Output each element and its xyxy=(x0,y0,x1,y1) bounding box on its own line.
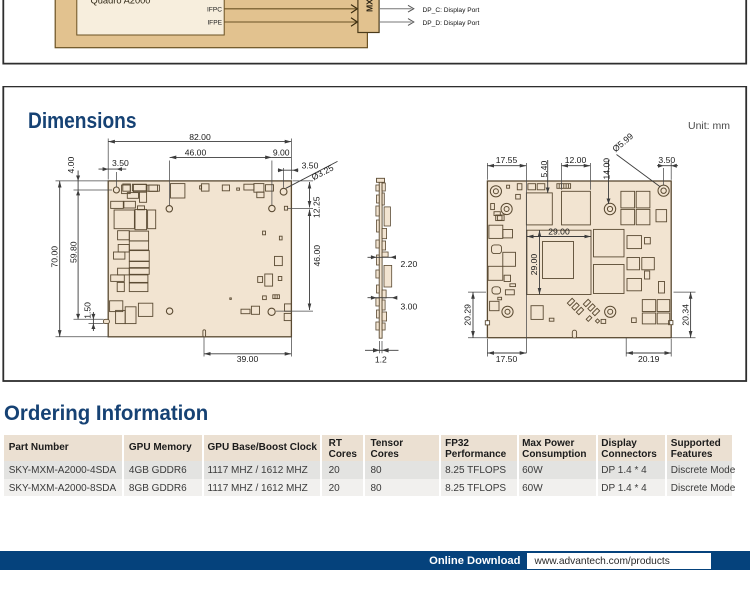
svg-text:3.50: 3.50 xyxy=(658,155,675,165)
svg-text:46.00: 46.00 xyxy=(185,148,207,158)
svg-text:20.19: 20.19 xyxy=(638,354,660,364)
svg-text:4.00: 4.00 xyxy=(66,157,76,174)
svg-text:12.00: 12.00 xyxy=(565,155,587,165)
svg-text:3.50: 3.50 xyxy=(112,158,129,168)
svg-text:IFPC: IFPC xyxy=(207,7,222,14)
svg-text:2.20: 2.20 xyxy=(401,259,418,269)
svg-text:17.55: 17.55 xyxy=(496,155,518,165)
svg-text:1.50: 1.50 xyxy=(83,302,93,319)
svg-text:1.2: 1.2 xyxy=(375,355,387,365)
svg-text:Quadro A2000: Quadro A2000 xyxy=(91,0,151,6)
svg-text:MXM 3.1: MXM 3.1 xyxy=(365,0,375,12)
svg-text:46.00: 46.00 xyxy=(312,245,322,267)
svg-text:5.40: 5.40 xyxy=(539,161,549,178)
svg-text:20.29: 20.29 xyxy=(462,304,472,326)
svg-text:82.00: 82.00 xyxy=(189,132,211,142)
svg-text:29.00: 29.00 xyxy=(548,227,570,237)
svg-text:DP_C: Display Port: DP_C: Display Port xyxy=(423,7,480,14)
svg-text:3.50: 3.50 xyxy=(302,160,319,170)
svg-text:14.00: 14.00 xyxy=(602,158,612,180)
svg-text:DP_D: Display Port: DP_D: Display Port xyxy=(423,20,480,27)
svg-text:59.80: 59.80 xyxy=(69,241,79,263)
svg-text:9.00: 9.00 xyxy=(273,147,290,157)
svg-text:Ø5.99: Ø5.99 xyxy=(610,131,635,154)
svg-text:12.25: 12.25 xyxy=(312,196,322,218)
svg-text:39.00: 39.00 xyxy=(237,354,259,364)
svg-text:29.00: 29.00 xyxy=(529,254,539,276)
svg-text:3.00: 3.00 xyxy=(401,302,418,312)
svg-text:20.34: 20.34 xyxy=(680,304,690,326)
svg-text:IFPE: IFPE xyxy=(207,20,222,27)
svg-text:70.00: 70.00 xyxy=(49,246,59,268)
svg-text:17.50: 17.50 xyxy=(496,354,518,364)
